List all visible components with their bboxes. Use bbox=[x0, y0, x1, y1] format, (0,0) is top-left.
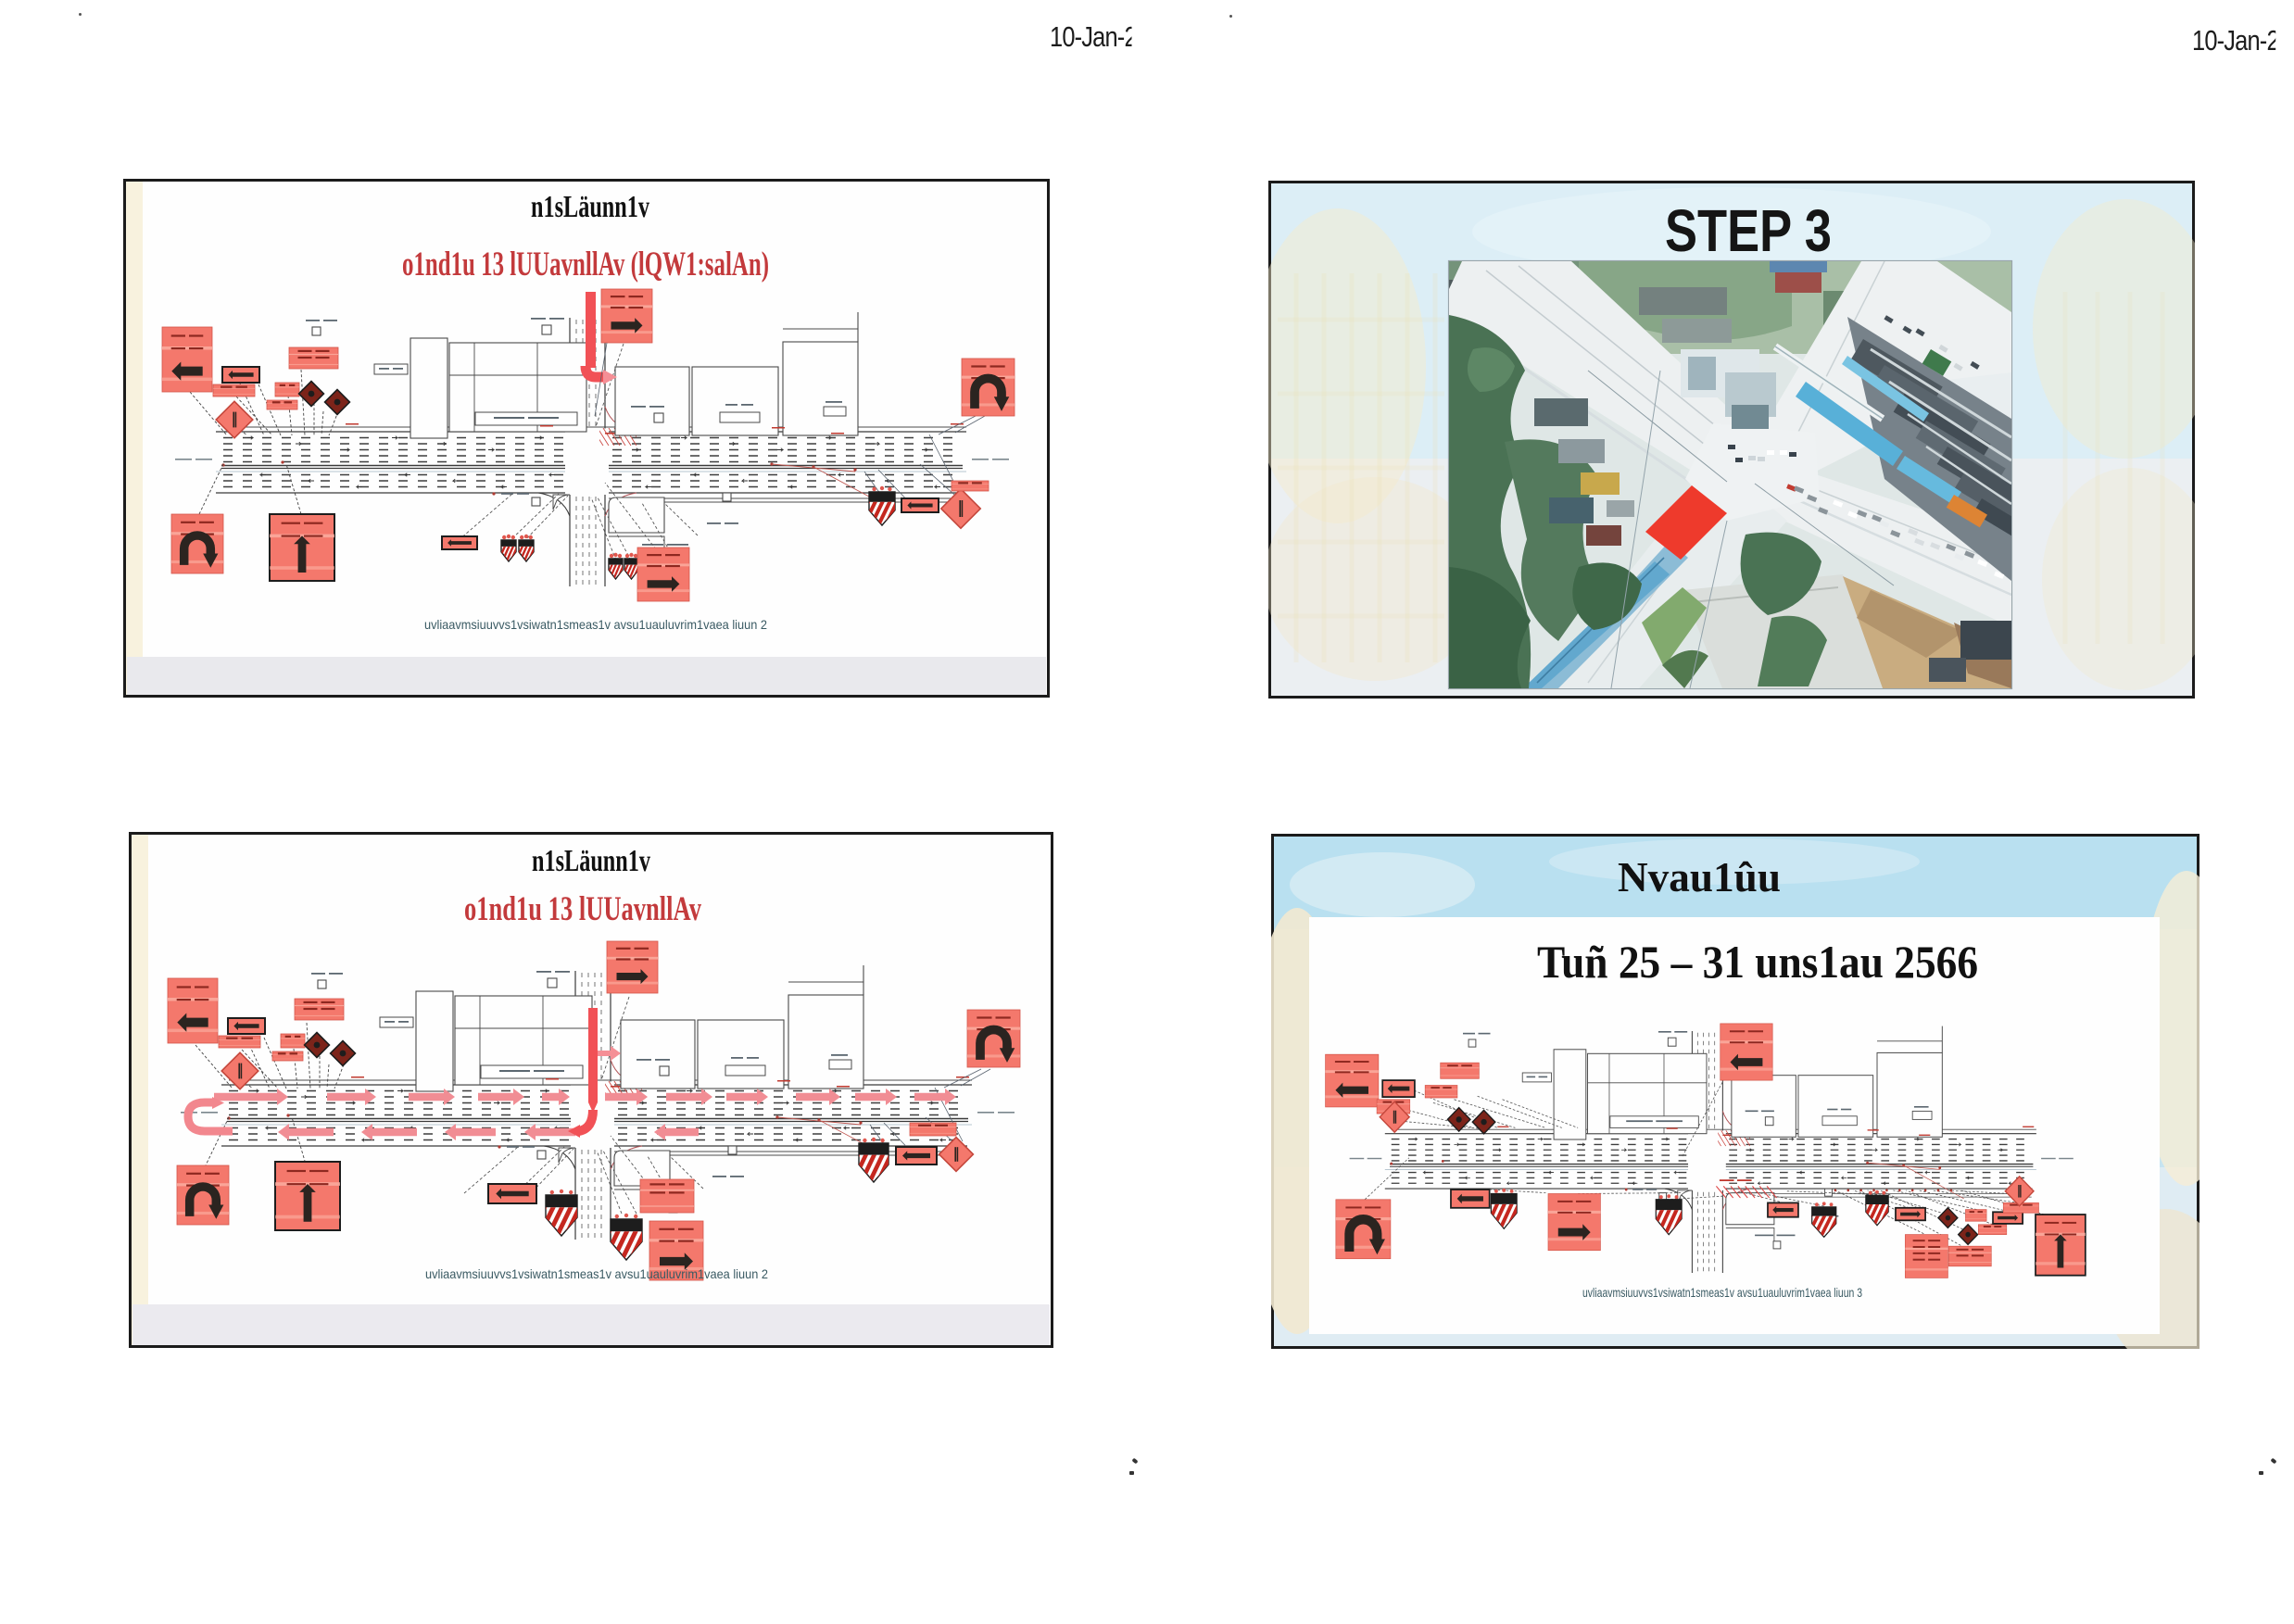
svg-text:o1nd1u 13 lUUavnllAv: o1nd1u 13 lUUavnllAv bbox=[464, 890, 701, 928]
svg-text:STEP 3: STEP 3 bbox=[1665, 197, 1832, 264]
svg-text:Nvau1ûu: Nvau1ûu bbox=[1618, 853, 1781, 900]
svg-text:n1sLäunn1v: n1sLäunn1v bbox=[532, 844, 650, 878]
svg-text:n1sLäunn1v: n1sLäunn1v bbox=[531, 190, 649, 224]
svg-text:uvliaavmsiuuvvs1vsiwatn1smeas1: uvliaavmsiuuvvs1vsiwatn1smeas1v avsu1uau… bbox=[1582, 1285, 1862, 1300]
svg-text:o1nd1u 13 lUUavnllAv (lQW1:sal: o1nd1u 13 lUUavnllAv (lQW1:salAn) bbox=[402, 245, 769, 283]
svg-text:uvliaavmsiuuvvs1vsiwatn1smeas1: uvliaavmsiuuvvs1vsiwatn1smeas1v avsu1uau… bbox=[424, 617, 767, 632]
svg-text:uvliaavmsiuuvvs1vsiwatn1smeas1: uvliaavmsiuuvvs1vsiwatn1smeas1v avsu1uau… bbox=[425, 1266, 768, 1281]
svg-text:Tuñ 25 – 31 uns1au 2566: Tuñ 25 – 31 uns1au 2566 bbox=[1537, 936, 1978, 988]
